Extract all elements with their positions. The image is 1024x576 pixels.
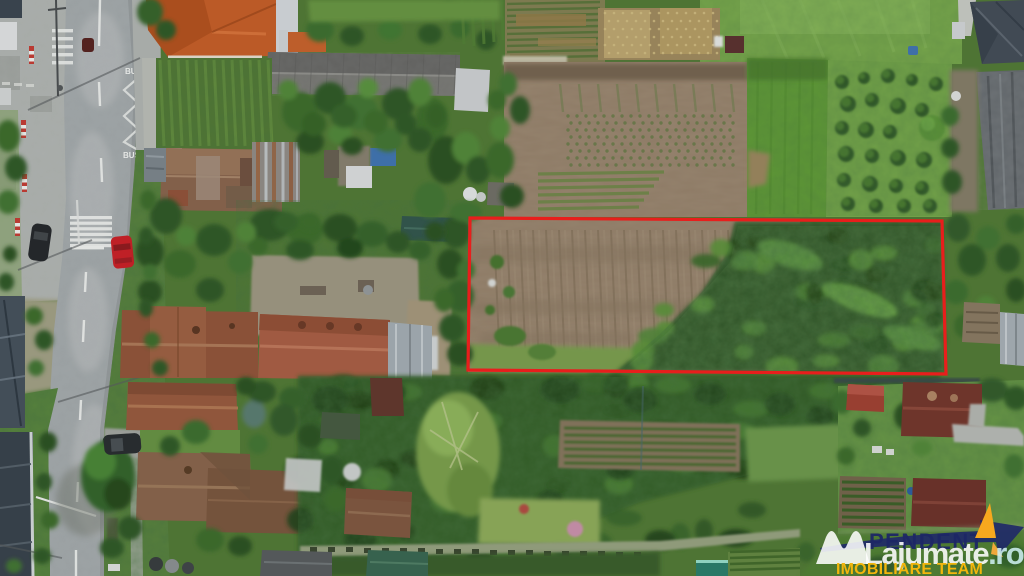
svg-text:IMOBILIARE TEAM: IMOBILIARE TEAM (836, 561, 983, 576)
